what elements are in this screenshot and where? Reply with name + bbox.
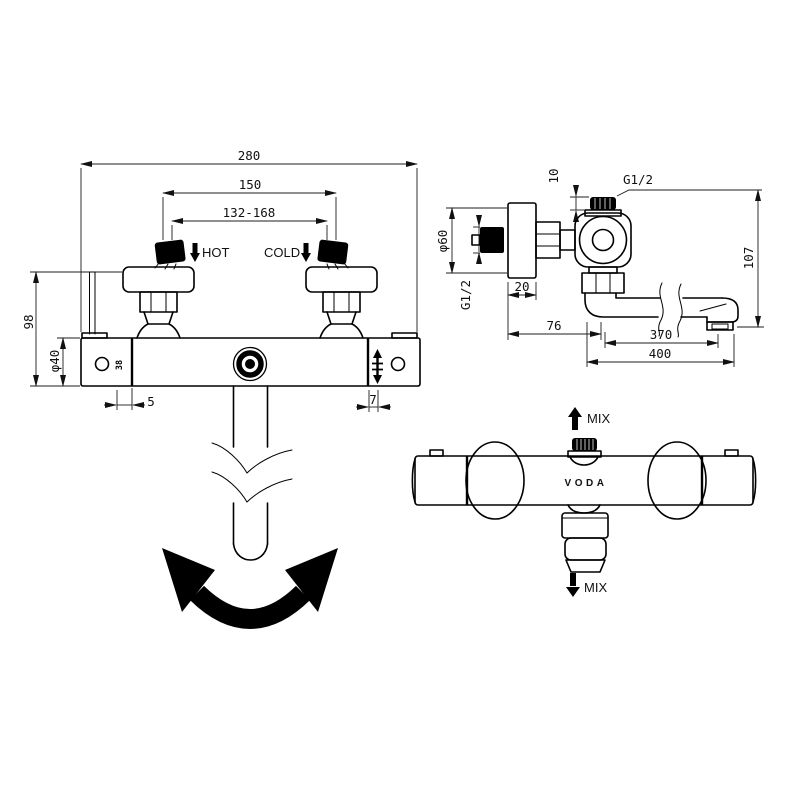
down-spout-pipe	[212, 386, 292, 560]
dim-wall-to-spout: 76	[546, 318, 561, 333]
right-inlet-assembly	[306, 239, 377, 338]
mix-down-arrow-icon	[566, 587, 580, 597]
top-right-tab	[725, 450, 738, 456]
front-body: 38	[81, 239, 420, 619]
mix-up-label: MIX	[568, 407, 610, 430]
center-diverter-knob	[234, 348, 267, 381]
dim-offset-right: 7	[369, 392, 377, 407]
mix-down-label: MIX	[566, 573, 607, 597]
top-left-tab	[430, 450, 443, 456]
left-escutcheon	[123, 267, 194, 292]
swivel-arrow-icon	[162, 548, 338, 619]
right-inlet-cap	[317, 239, 348, 264]
cold-down-arrow-icon	[304, 243, 309, 253]
dim-spout-reach: 370	[650, 327, 673, 342]
right-cap-tab	[392, 333, 417, 338]
hot-inlet-label: HOT	[190, 243, 230, 262]
drawing-canvas: 280 150 132-168 98 φ40 5 7 HOT COLD 38	[0, 0, 800, 800]
technical-drawing-page: 280 150 132-168 98 φ40 5 7 HOT COLD 38	[0, 0, 800, 800]
left-cap-tab	[82, 333, 107, 338]
thread-top-label: G1/2	[623, 172, 653, 187]
brand-logo: VODA	[565, 478, 608, 489]
cold-label: COLD	[264, 245, 300, 260]
dim-plate-depth: 20	[514, 279, 529, 294]
spout-nut	[582, 273, 624, 293]
side-view: 10 G1/2 107 φ60 G1/2 20 76 370 400	[435, 168, 764, 367]
left-handle-top	[466, 442, 524, 519]
valve-center	[593, 230, 614, 251]
mix-up-text: MIX	[587, 411, 610, 426]
cold-inlet-label: COLD	[264, 243, 311, 262]
dim-overall-width: 280	[238, 148, 261, 163]
cold-down-arrow-head-icon	[301, 253, 311, 262]
hot-down-arrow-icon	[193, 243, 198, 253]
top-view: MIX VODA	[412, 407, 755, 597]
dim-offset-left: 5	[147, 394, 155, 409]
dim-height-98: 98	[21, 314, 36, 329]
top-shower-connector	[590, 197, 616, 210]
valve-housing	[575, 213, 631, 267]
spout-break-line-2	[678, 284, 682, 337]
left-inlet-cap	[154, 239, 185, 264]
break-line-2	[212, 472, 292, 502]
right-escutcheon	[306, 267, 377, 292]
mix-down-text: MIX	[584, 580, 607, 595]
connector-stem	[560, 230, 575, 250]
bottom-outlet-assembly	[562, 505, 608, 572]
top-body: VODA	[412, 438, 755, 572]
dim-inlet-spacing: 150	[239, 177, 262, 192]
dim-cap-diameter: φ40	[47, 350, 62, 373]
dim-plate-diameter: φ60	[435, 230, 450, 253]
left-handle-screw	[96, 358, 109, 371]
left-inlet-assembly	[123, 239, 194, 338]
wall-union-nut	[480, 227, 504, 253]
dim-adjust-range: 132-168	[223, 205, 276, 220]
union-hex-nut	[536, 222, 560, 258]
wall-bracket-lines	[90, 272, 96, 334]
break-line-1	[212, 443, 292, 473]
bottom-flange	[589, 267, 617, 273]
dim-cap-offset: 10	[546, 168, 561, 183]
mix-up-arrow-icon	[568, 407, 582, 417]
right-hex-nut	[323, 292, 360, 312]
dim-side-height: 107	[741, 247, 756, 270]
front-dimension-lines	[36, 164, 417, 407]
side-body	[472, 197, 738, 337]
thread-wall-label: G1/2	[458, 280, 473, 310]
flow-double-arrow-icon	[372, 349, 383, 384]
temp-cap-marking: 38	[115, 360, 125, 370]
left-hex-nut	[140, 292, 177, 312]
dim-total-reach: 400	[649, 346, 672, 361]
hot-label: HOT	[202, 245, 230, 260]
g12-leader-line	[617, 190, 762, 196]
front-view: 280 150 132-168 98 φ40 5 7 HOT COLD 38	[21, 148, 420, 619]
right-handle-top	[648, 442, 706, 519]
right-handle-screw	[392, 358, 405, 371]
valve-face	[580, 217, 627, 264]
wall-escutcheon-plate	[508, 203, 536, 278]
hot-down-arrow-head-icon	[190, 253, 200, 262]
